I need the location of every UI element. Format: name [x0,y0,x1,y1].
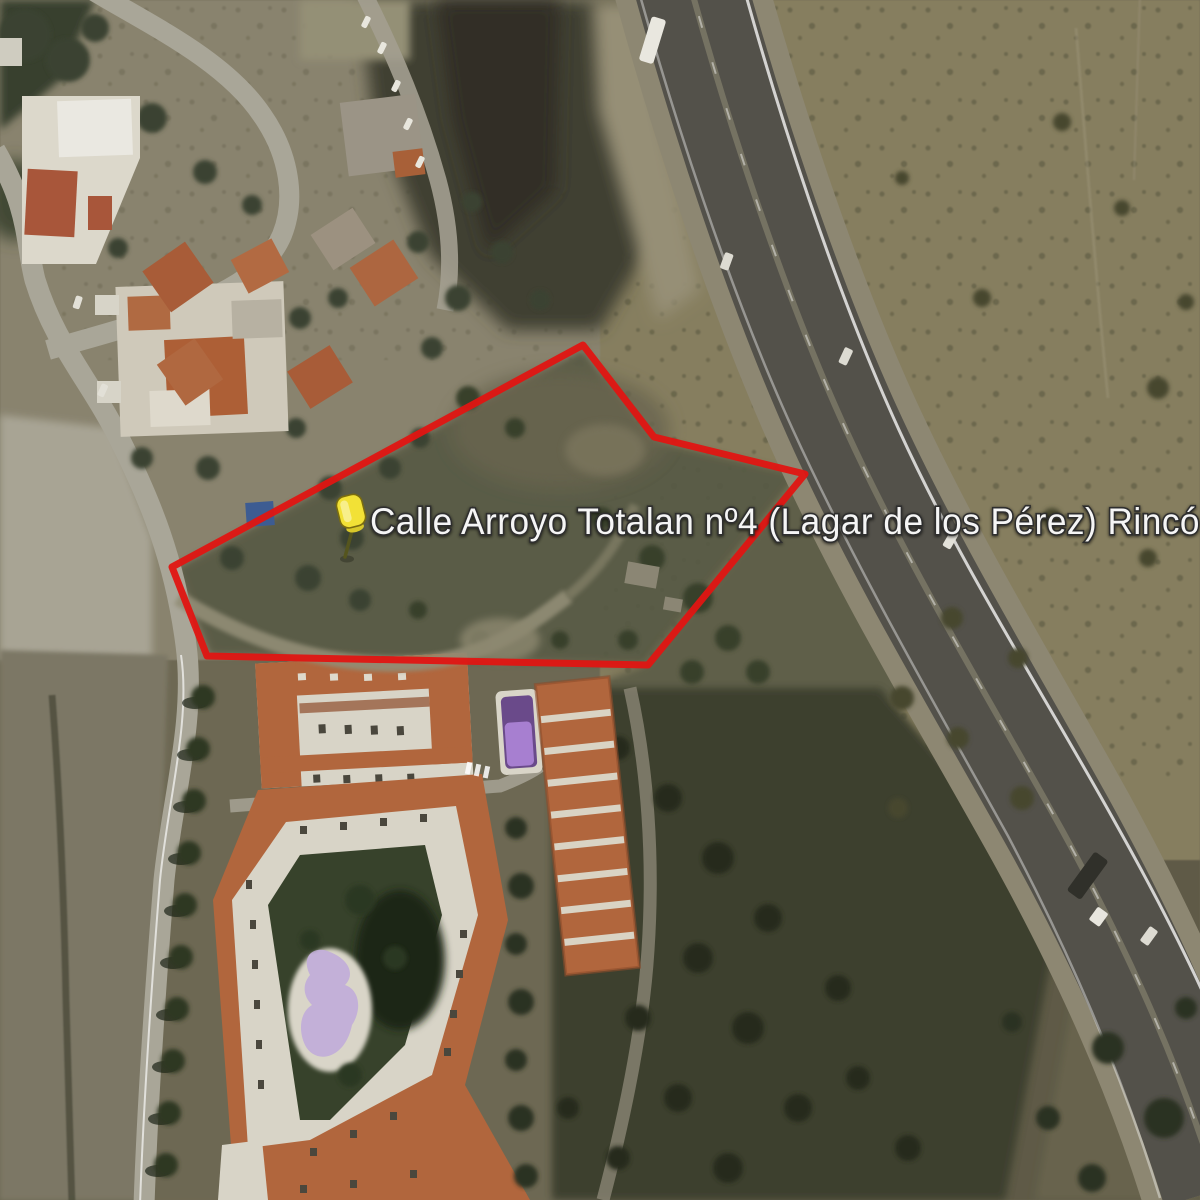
pentagon-complex [213,774,530,1200]
place-label-text: Calle Arroyo Totalan nº4 (Lagar de los P… [370,501,1200,542]
pool-purple-upper [504,721,534,767]
satellite-map-canvas[interactable]: Calle Arroyo Totalan nº4 (Lagar de los P… [0,0,1200,1200]
u-shaped-block [255,653,473,790]
satellite-map-view[interactable]: Calle Arroyo Totalan nº4 (Lagar de los P… [0,0,1200,1200]
